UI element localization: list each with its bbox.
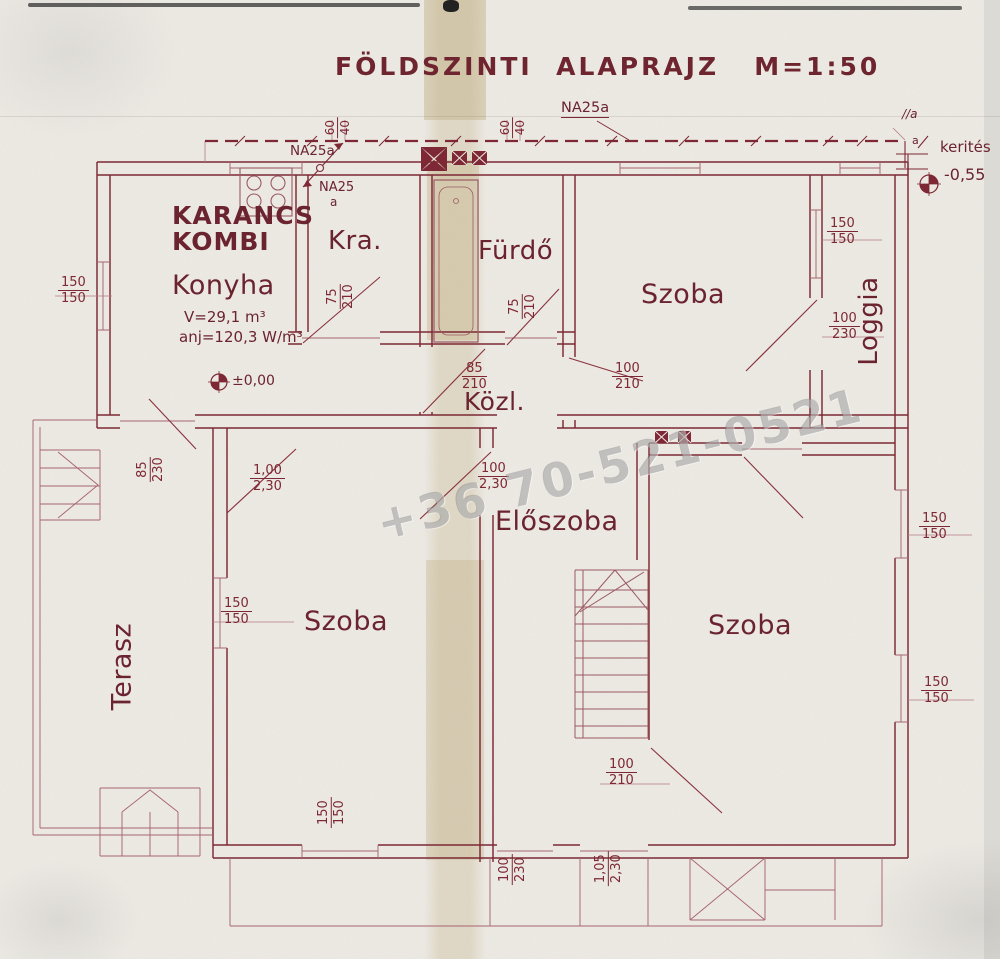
kitchen-volume: V=29,1 m³ bbox=[184, 308, 266, 326]
dim-fence-offset-mid: 6040 bbox=[499, 117, 526, 138]
fence-label: kerités bbox=[940, 138, 991, 156]
room-label-kamra: Kra. bbox=[328, 226, 382, 256]
dim-bottom-door2: 1,052,30 bbox=[594, 851, 623, 886]
photo-edge-mark bbox=[28, 3, 420, 7]
kitchen-heat-demand: anj=120,3 W/m³ bbox=[179, 328, 303, 346]
room-label-konyha: Konyha bbox=[172, 270, 275, 301]
dim-loggia-door: 100230 bbox=[829, 312, 860, 341]
dim-terasz-door: 85230 bbox=[136, 457, 165, 482]
level-fence-text: -0,55 bbox=[944, 165, 985, 184]
door-swing-lines bbox=[149, 277, 817, 813]
pipe-label-na25a-left: NA25a bbox=[290, 143, 335, 159]
dim-loggia-window: 150150 bbox=[827, 217, 858, 246]
dim-kitchen-window: 150150 bbox=[58, 276, 89, 305]
dim-szoba-topright-door: 100210 bbox=[612, 362, 643, 391]
dim-kozlekedo-door: 85210 bbox=[462, 362, 487, 391]
page-title: FÖLDSZINTI ALAPRAJZ M=1:50 bbox=[335, 52, 880, 81]
photo-edge-blob bbox=[443, 0, 459, 12]
room-label-szoba-bottomright: Szoba bbox=[708, 610, 792, 641]
dim-right-window-lower: 150150 bbox=[921, 676, 952, 705]
dim-right-window-upper: 150150 bbox=[919, 512, 950, 541]
floorplan-scan: FÖLDSZINTI ALAPRAJZ M=1:50 Konyha Kra. F… bbox=[0, 0, 1000, 959]
dim-szoba-bottomleft-window2: 150150 bbox=[317, 797, 346, 828]
bathtub-icon bbox=[434, 180, 478, 342]
pipe-label-na25-mid: NA25 bbox=[319, 180, 354, 195]
dim-bottom-door: 100230 bbox=[498, 854, 527, 885]
photo-edge-mark bbox=[688, 6, 962, 10]
room-label-furdo: Fürdő bbox=[478, 236, 553, 266]
room-label-szoba-topright: Szoba bbox=[641, 279, 725, 310]
pipe-label-na25-mid-a: a bbox=[330, 195, 337, 209]
dim-szoba-bottomright-door: 100210 bbox=[606, 758, 637, 787]
room-label-szoba-bottomleft: Szoba bbox=[304, 606, 388, 637]
stove-brand-line2: KOMBI bbox=[172, 227, 270, 256]
dim-furdo-door: 75210 bbox=[508, 294, 537, 319]
pipe-label-na25a-top: NA25a bbox=[561, 100, 609, 118]
stairs-icon bbox=[575, 570, 648, 738]
fence-mark-a: a bbox=[912, 134, 919, 147]
dim-kamra-door: 75210 bbox=[326, 284, 355, 309]
fence-mark: //a bbox=[902, 107, 917, 121]
dim-szoba-bottomleft-door: 1,002,30 bbox=[250, 464, 285, 493]
level-ground-text: ±0,00 bbox=[232, 373, 275, 389]
dim-szoba-bottomleft-window: 150150 bbox=[221, 597, 252, 626]
room-label-terasz: Terasz bbox=[107, 605, 138, 729]
dim-fence-offset-left: 6040 bbox=[324, 117, 351, 138]
stove-brand-line1: KARANCS bbox=[172, 201, 314, 230]
